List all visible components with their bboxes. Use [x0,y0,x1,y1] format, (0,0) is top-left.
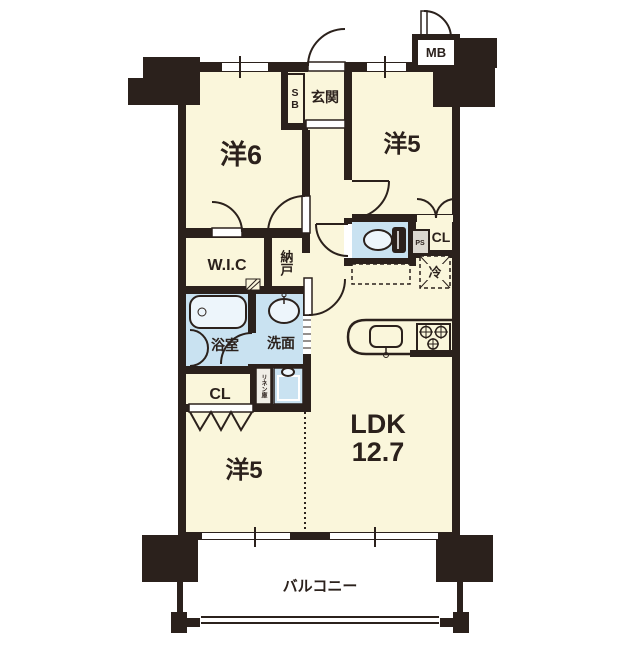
label-west5-upper: 洋5 [383,130,420,158]
washing-machine-pan-icon [274,368,303,404]
label-ldk: LDK [350,409,406,439]
label-linen: リネン庫 [260,374,267,399]
entrance-door [308,29,345,71]
label-walk-in-closet: W.I.C [207,257,247,274]
label-closet-upper: CL [432,229,451,245]
balcony-railing [201,616,439,624]
washroom-sliding-door [303,316,311,354]
window-ldk [330,533,438,539]
label-west5-lower: 洋5 [225,456,262,484]
floor-plan-page: 洋6 洋5 洋5 LDK 12.7 玄関 SB MB W.I.C 納戸 浴室 洗… [0,0,640,640]
label-washroom: 洗面 [267,335,295,351]
label-balcony: バルコニー [283,578,358,595]
bathtub-icon [190,296,246,328]
toilet-icon [364,227,406,253]
label-bathroom: 浴室 [211,337,239,353]
duct-space-box [246,279,260,290]
label-ldk-size: 12.7 [352,437,405,467]
floor-plan: 洋6 洋5 洋5 LDK 12.7 玄関 SB MB W.I.C 納戸 浴室 洗… [0,0,640,640]
label-pipe-space: PS [415,240,425,247]
label-meter-box: MB [426,45,446,60]
hanging-cabinet [352,264,410,284]
meter-box-door [421,11,451,38]
label-refrigerator: 冷 [428,265,441,280]
label-entrance: 玄関 [311,89,339,105]
label-west6: 洋6 [220,139,262,170]
label-closet-lower: CL [209,386,231,403]
label-shoe-box: SB [289,87,301,111]
label-storage: 納戸 [279,249,294,277]
window-west5-lower [202,533,290,539]
window-west6 [222,63,268,71]
window-west5-upper [367,63,406,71]
entrance-step [306,120,345,128]
